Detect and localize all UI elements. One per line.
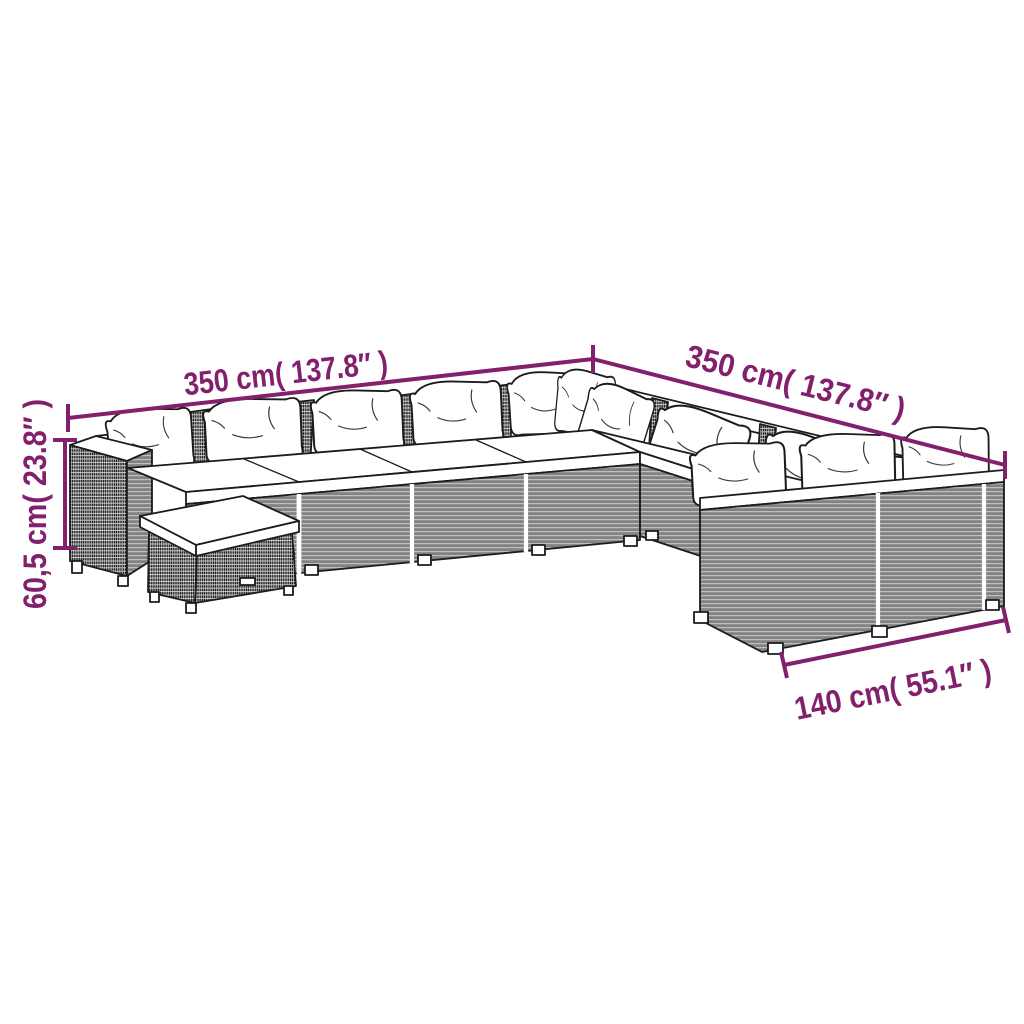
foot <box>305 565 318 575</box>
brand-plate <box>240 578 255 585</box>
dimension-label-left-height: 60,5 cm( 23.8″ ) <box>17 399 53 609</box>
ottoman <box>140 496 299 613</box>
foot <box>986 600 999 610</box>
foot <box>118 576 128 586</box>
foot <box>694 612 708 623</box>
foot <box>532 545 545 555</box>
end-section-back <box>694 470 1004 654</box>
foot <box>186 603 196 613</box>
foot <box>72 561 82 573</box>
foot <box>624 536 637 546</box>
dimension-label-bottom-right: 140 cm( 55.1″ ) <box>791 652 994 727</box>
foot <box>418 555 431 565</box>
sofa-dimension-drawing: 350 cm( 137.8″ ) 350 cm( 137.8″ ) 60,5 c… <box>0 0 1024 1024</box>
left-arm-section <box>70 436 152 586</box>
foot <box>872 626 887 637</box>
foot <box>284 586 293 595</box>
product-dimension-diagram: 350 cm( 137.8″ ) 350 cm( 137.8″ ) 60,5 c… <box>0 0 1024 1024</box>
foot <box>646 531 658 540</box>
foot <box>150 592 159 602</box>
